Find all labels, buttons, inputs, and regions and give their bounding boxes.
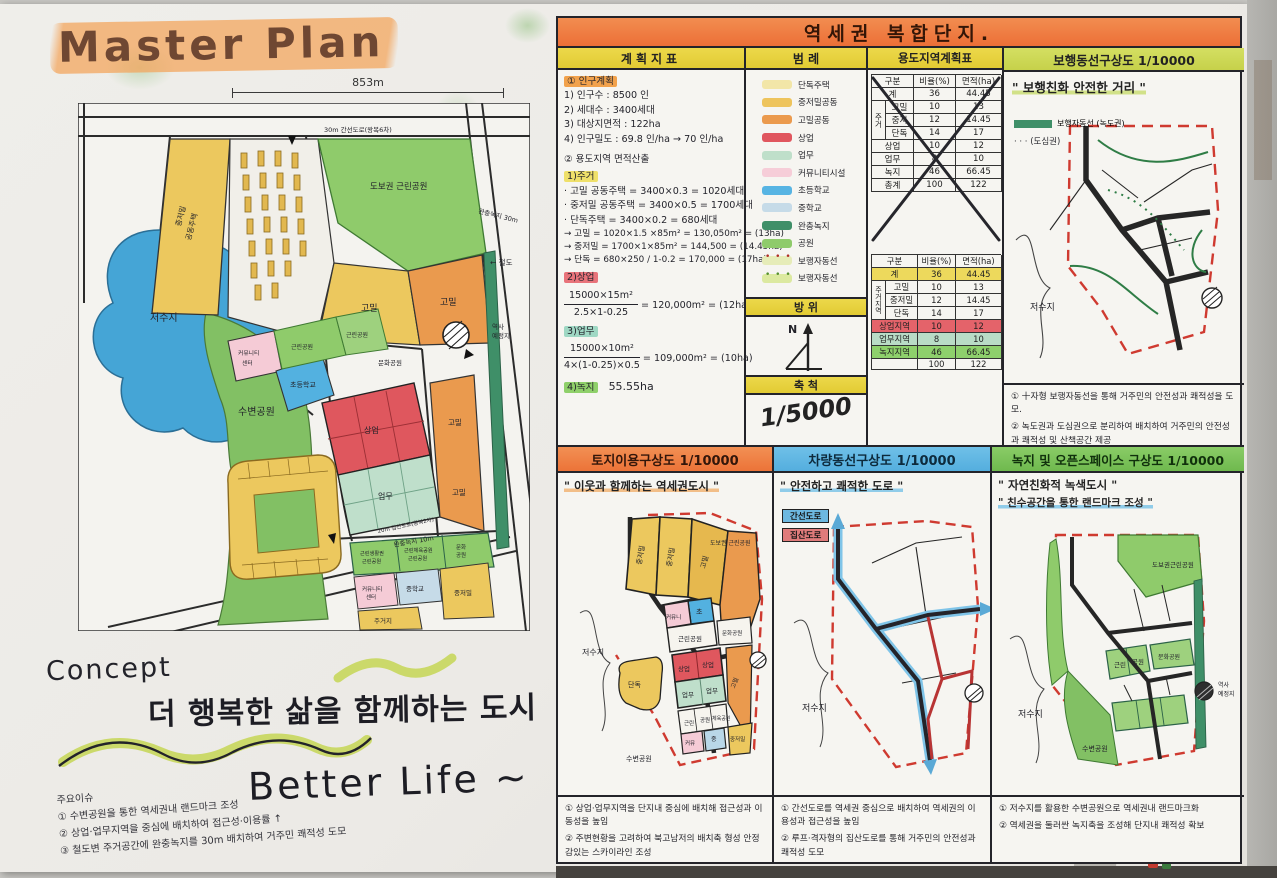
households-line: 2) 세대수 : 3400세대 <box>564 104 738 118</box>
tr-boundary <box>832 521 978 767</box>
pedestrian-plan-panel: 보행동선구상도 1/10000 " 보행친화 안전한 거리 " 보행자동선 (녹… <box>1004 48 1244 445</box>
arterial-chip: 간선도로 <box>782 509 829 523</box>
parkrow3-label: 문화 <box>456 544 466 551</box>
dots-legend: · · · (도심권) <box>1014 135 1125 147</box>
legend-item: 보행자동선 <box>746 270 866 288</box>
compass-icon: N <box>774 319 838 375</box>
parkrow1-label: 근린생활권 <box>360 549 384 557</box>
lu-comm-label: 커뮤니 <box>666 613 681 621</box>
rail-label: ← 철도 <box>490 257 513 267</box>
gr-lake-label: 저수지 <box>1018 709 1043 720</box>
swatch-elementary <box>762 186 792 195</box>
traffic-map: 저수지 <box>776 503 990 791</box>
lu-station-icon <box>750 652 766 668</box>
apartment-zone <box>228 139 334 341</box>
right-board: 역세권 복합단지. 계획지표 ① 인구계획 1) 인구수 : 8500 인 2)… <box>556 16 1242 864</box>
gr-n2-label: 공원 <box>1132 657 1144 666</box>
scale-value: 1/5000 <box>745 390 868 434</box>
lu-note-2: ② 주변현황을 고려하여 북고남저의 배치축 형성 안정감있는 스카이라인 조성 <box>565 833 765 859</box>
gr-n1-label: 근린 <box>1114 661 1126 669</box>
legend-item: 중학교 <box>746 199 866 217</box>
waterpark-label: 수변공원 <box>238 406 275 418</box>
legend-header: 범 례 <box>746 48 866 70</box>
highd3-label: 고밀 <box>448 418 462 427</box>
master-plan-map: 저수지 수변공원 도보권 근린공원 중저밀 공동주택 고밀 고밀 고밀 고밀 근… <box>78 103 530 631</box>
calc-r3: · 단독주택 = 3400×0.2 = 680세대 <box>564 214 738 228</box>
tr-note-2: ② 루프·격자형의 집산도로를 통해 거주민의 안전성과 쾌적성 도모 <box>781 833 983 859</box>
business-fraction: 15000×10m²4×(1-0.25)×0.5 <box>564 342 640 374</box>
concept-heading: Concept <box>45 652 172 687</box>
commercial-fraction: 15000×15m²2.5×1-0.25 <box>564 289 638 321</box>
traffic-legend: 간선도로 집산도로 <box>782 509 829 542</box>
legend-item: 커뮤니티시설 <box>746 164 866 182</box>
calc-r1: · 고밀 공동주택 = 3400×0.3 = 1020세대 <box>564 185 738 199</box>
station-label2: 예정지 <box>492 331 510 340</box>
landuse-header: 토지이용구상도 1/10000 <box>558 447 772 473</box>
lu-elem-label: 초 <box>696 608 703 616</box>
green-total: 55.55ha <box>609 380 654 393</box>
lu-s1-label: 상업 <box>678 664 690 673</box>
pedestrian-header: 보행동선구상도 1/10000 <box>1004 48 1244 72</box>
legend-item: 상업 <box>746 129 866 147</box>
landuse-concept-panel: 토지이용구상도 1/10000 " 이웃과 함께하는 역세권도시 " <box>558 445 774 864</box>
swatch-ped-line-green <box>762 274 792 283</box>
calc-r2: · 중저밀 공동주택 = 3400×0.5 = 1700세대 <box>564 199 738 213</box>
wall-smudge <box>1254 60 1272 180</box>
commercial-sub: 2)상업 <box>564 272 598 283</box>
comm2-label2: 센터 <box>366 593 376 601</box>
page-title: Master Plan <box>50 17 399 74</box>
lu-lake-label: 저수지 <box>582 648 604 657</box>
parkrow3-label2: 공원 <box>456 551 466 559</box>
site-area-line: 3) 대상지면적 : 122ha <box>564 118 738 132</box>
greenspace-quote1: " 자연친화적 녹색도시 " <box>992 473 1244 493</box>
npark1-label: 근린공원 <box>291 343 313 351</box>
gr-walkpark-label: 도보권근린공원 <box>1152 560 1194 569</box>
pedestrian-legend: 보행자동선 (녹도권) · · · (도심권) <box>1014 118 1125 147</box>
ped-lake-label: 저수지 <box>1030 302 1055 313</box>
map-dimension-top: 853m <box>232 92 504 93</box>
road-top-label: 30m 간선도로(왕복6차) <box>324 125 392 134</box>
poster-photo: Master Plan 853m 1439M <box>0 0 1277 878</box>
greenspace-header: 녹지 및 오픈스페이스 구상도 1/10000 <box>992 447 1244 473</box>
tr-collector-roads <box>928 617 972 759</box>
swatch-ped-line-red <box>762 256 792 265</box>
lu-waterpark-label: 수변공원 <box>626 754 652 763</box>
greenspace-map: 도보권근린공원 근린 공원 문화공원 수변공원 저수지 역사 예정지 <box>994 519 1242 791</box>
landuse-quote: " 이웃과 함께하는 역세권도시 " <box>564 479 719 493</box>
pedestrian-map: 저수지 <box>1006 110 1242 380</box>
walkpark-label: 도보권 근린공원 <box>370 181 427 192</box>
greenway-swatch <box>1014 120 1052 128</box>
lu-culture-label: 문화공원 <box>722 629 742 637</box>
legend-item: 단독주택 <box>746 76 866 94</box>
collector-chip: 집산도로 <box>782 528 829 542</box>
plan-indicator-panel: 계획지표 ① 인구계획 1) 인구수 : 8500 인 2) 세대수 : 340… <box>558 48 746 445</box>
lu-row1-label: 근린 <box>684 720 694 727</box>
tr-lake-label: 저수지 <box>802 703 827 714</box>
tr-arterial-roads <box>838 529 980 761</box>
npark2-label: 근린공원 <box>346 331 368 339</box>
gr-waterpark-label: 수변공원 <box>1082 744 1108 753</box>
parkrow2-label: 근린체육공원 <box>404 546 433 554</box>
lu-s2-label: 상업 <box>702 660 714 669</box>
greenspace-notes: ① 저수지를 활용한 수변공원으로 역세권내 랜드마크화 ② 역세권을 둘러싼 … <box>992 795 1244 866</box>
calc-r6: → 단독 = 680×250 / 1-0.2 = 170,000 = (17ha… <box>564 254 738 267</box>
swatch-park <box>762 239 792 248</box>
lu-single-label: 단독 <box>628 680 641 689</box>
station-label: 역사 <box>492 322 504 331</box>
lu-row3-label: 체육공원 <box>712 715 731 722</box>
legend-item: 중저밀공동 <box>746 94 866 112</box>
ped-note-1: ① 十자형 보행자동선을 통해 거주민의 안전성과 쾌적성을 도모. <box>1011 391 1237 417</box>
parkrow2-label2: 근린공원 <box>408 554 427 562</box>
legend-item: 초등학교 <box>746 182 866 200</box>
parkrow1-label2: 근린공원 <box>362 557 381 565</box>
swatch-business <box>762 151 792 160</box>
business-result: = 109,000m² = (10ha) <box>643 353 753 364</box>
legend-list: 단독주택 중저밀공동 고밀공동 상업 업무 커뮤니티시설 초등학교 중학교 완충… <box>746 70 866 287</box>
traffic-quote: " 안전하고 쾌적한 도로 " <box>780 479 903 493</box>
swatch-buffer <box>762 221 792 230</box>
business-sub: 3)업무 <box>564 326 598 337</box>
greenspace-quote2: " 친수공간을 통한 랜드마크 조성 " <box>998 497 1153 509</box>
legend-item: 고밀공동 <box>746 111 866 129</box>
lu-b2-label: 업무 <box>706 687 718 695</box>
comm1-label: 커뮤니티 <box>238 349 259 357</box>
gr-culture-label: 문화공원 <box>1158 653 1180 661</box>
lu-mid-label: 중 <box>711 736 717 743</box>
lu-comm2-label: 커뮤 <box>685 739 695 747</box>
compass-n: N <box>788 323 797 336</box>
lu-npark-label: 근린공원 <box>678 634 702 643</box>
legend-item: 업무 <box>746 146 866 164</box>
population-line: 1) 인구수 : 8500 인 <box>564 89 738 103</box>
landuse-calc-heading: ② 용도지역 면적산출 <box>564 153 738 167</box>
gr-note-2: ② 역세권을 둘러싼 녹지축을 조성해 단지내 쾌적성 확보 <box>999 820 1237 833</box>
table-header: 용도지역계획표 <box>868 48 1002 70</box>
landuse-table-panel: 용도지역계획표 구분비율(%)면적(ha) 계3644.45 주거 고밀1013… <box>868 48 1004 445</box>
highd4-label: 고밀 <box>452 488 466 497</box>
res-bottom-label: 주거지 <box>374 616 392 625</box>
traffic-notes: ① 간선도로를 역세권 중심으로 배치하여 역세권의 이용성과 접근성을 높임 … <box>774 795 990 866</box>
gr-buffer-strip <box>1194 579 1206 749</box>
midschool-label: 중학교 <box>406 584 424 593</box>
station-site-icon <box>443 321 469 349</box>
comm2-label: 커뮤니티 <box>362 585 382 593</box>
traffic-header: 차량동선구상도 1/10000 <box>774 447 990 473</box>
population-plan-heading: ① 인구계획 <box>564 76 617 87</box>
legend-item: 공원 <box>746 234 866 252</box>
elem-label: 초등학교 <box>290 380 316 389</box>
highd1-label: 고밀 <box>361 302 378 314</box>
gr-station-label2: 예정지 <box>1218 690 1235 698</box>
pedestrian-notes: ① 十자형 보행자동선을 통해 거주민의 안전성과 쾌적성을 도모. ② 녹도권… <box>1004 383 1244 445</box>
lu-note-1: ① 상업·업무지역을 단지내 중심에 배치해 접근성과 이동성을 높임 <box>565 803 765 829</box>
table-cross-out <box>871 74 1001 244</box>
crossed-table: 구분비율(%)면적(ha) 계3644.45 주거 고밀1013 중저1214.… <box>871 74 1001 244</box>
landuse-map: 중저밀 중저밀 고밀 도보권 근린공원 문화공원 초 커뮤니 근린공원 상업 상… <box>560 503 772 791</box>
greenspace-plan-panel: 녹지 및 오픈스페이스 구상도 1/10000 " 자연친화적 녹색도시 " "… <box>992 445 1244 864</box>
pedestrian-quote: " 보행친화 안전한 거리 " <box>1012 80 1146 95</box>
compass-header: 방 위 <box>746 297 866 317</box>
lake-label: 저수지 <box>150 312 178 324</box>
swatch-detached <box>762 80 792 89</box>
corrected-table: 구분비율(%)면적(ha) 계3644.45 주거지역 고밀1013 중저밀12… <box>871 254 1001 370</box>
swatch-community <box>762 168 792 177</box>
gr-station-icon <box>1195 682 1213 700</box>
commercial-label: 상업 <box>364 425 379 435</box>
legend-item: 보행자동선 <box>746 252 866 270</box>
commercial-result: = 120,000m² = (12ha) <box>641 300 751 311</box>
legend-item: 완충녹지 <box>746 217 866 235</box>
density-line: 4) 인구밀도 : 69.8 인/ha → 70 인/ha <box>564 133 738 147</box>
landuse-notes: ① 상업·업무지역을 단지내 중심에 배치해 접근성과 이동성을 높임 ② 주변… <box>558 795 772 866</box>
gr-station-label: 역사 <box>1218 681 1230 689</box>
traffic-plan-panel: 차량동선구상도 1/10000 " 안전하고 쾌적한 도로 " 간선도로 집산도… <box>774 445 992 864</box>
dimension-label: 853m <box>352 76 384 89</box>
plan-panel-header: 계획지표 <box>558 48 744 70</box>
residential-sub: 1)주거 <box>564 171 598 182</box>
ped-note-2: ② 녹도권과 도심권으로 분리하여 배치하여 거주민의 안전성과 쾌적성 및 산… <box>1011 421 1237 447</box>
culture-mid-label: 문화공원 <box>378 358 402 367</box>
lu-res-label: 중저밀 <box>730 735 745 743</box>
tr-arrows <box>831 513 990 775</box>
green-sub: 4)녹지 <box>564 382 598 393</box>
swatch-high <box>762 115 792 124</box>
comm1-label2: 센터 <box>242 359 253 367</box>
lu-row2-label: 공원 <box>700 716 710 724</box>
swatch-midlow <box>762 98 792 107</box>
lu-walkpark-label: 도보권 근린공원 <box>710 539 751 547</box>
gr-note-1: ① 저수지를 활용한 수변공원으로 역세권내 랜드마크화 <box>999 803 1237 816</box>
lu-b1-label: 업무 <box>682 691 694 699</box>
legend-panel: 범 례 단독주택 중저밀공동 고밀공동 상업 업무 커뮤니티시설 초등학교 중학… <box>746 48 868 445</box>
board-banner: 역세권 복합단지. <box>558 18 1240 48</box>
res-right-label: 중저밀 <box>454 588 472 597</box>
tr-station-icon <box>965 684 983 702</box>
calc-r4: → 고밀 = 1020×1.5 ×85m² = 130,050m² = (13h… <box>564 228 738 241</box>
calc-r5: → 중저밀 = 1700×1×85m² = 144,500 = (14.45ha… <box>564 241 738 254</box>
swatch-commercial <box>762 133 792 142</box>
gr-west-green-strip <box>1047 539 1069 685</box>
business-label: 업무 <box>378 492 393 501</box>
station-icon <box>1202 287 1222 308</box>
highd2-label: 고밀 <box>440 296 457 308</box>
swatch-middleschool <box>762 203 792 212</box>
tr-note-1: ① 간선도로를 역세권 중심으로 배치하여 역세권의 이용성과 접근성을 높임 <box>781 803 983 829</box>
